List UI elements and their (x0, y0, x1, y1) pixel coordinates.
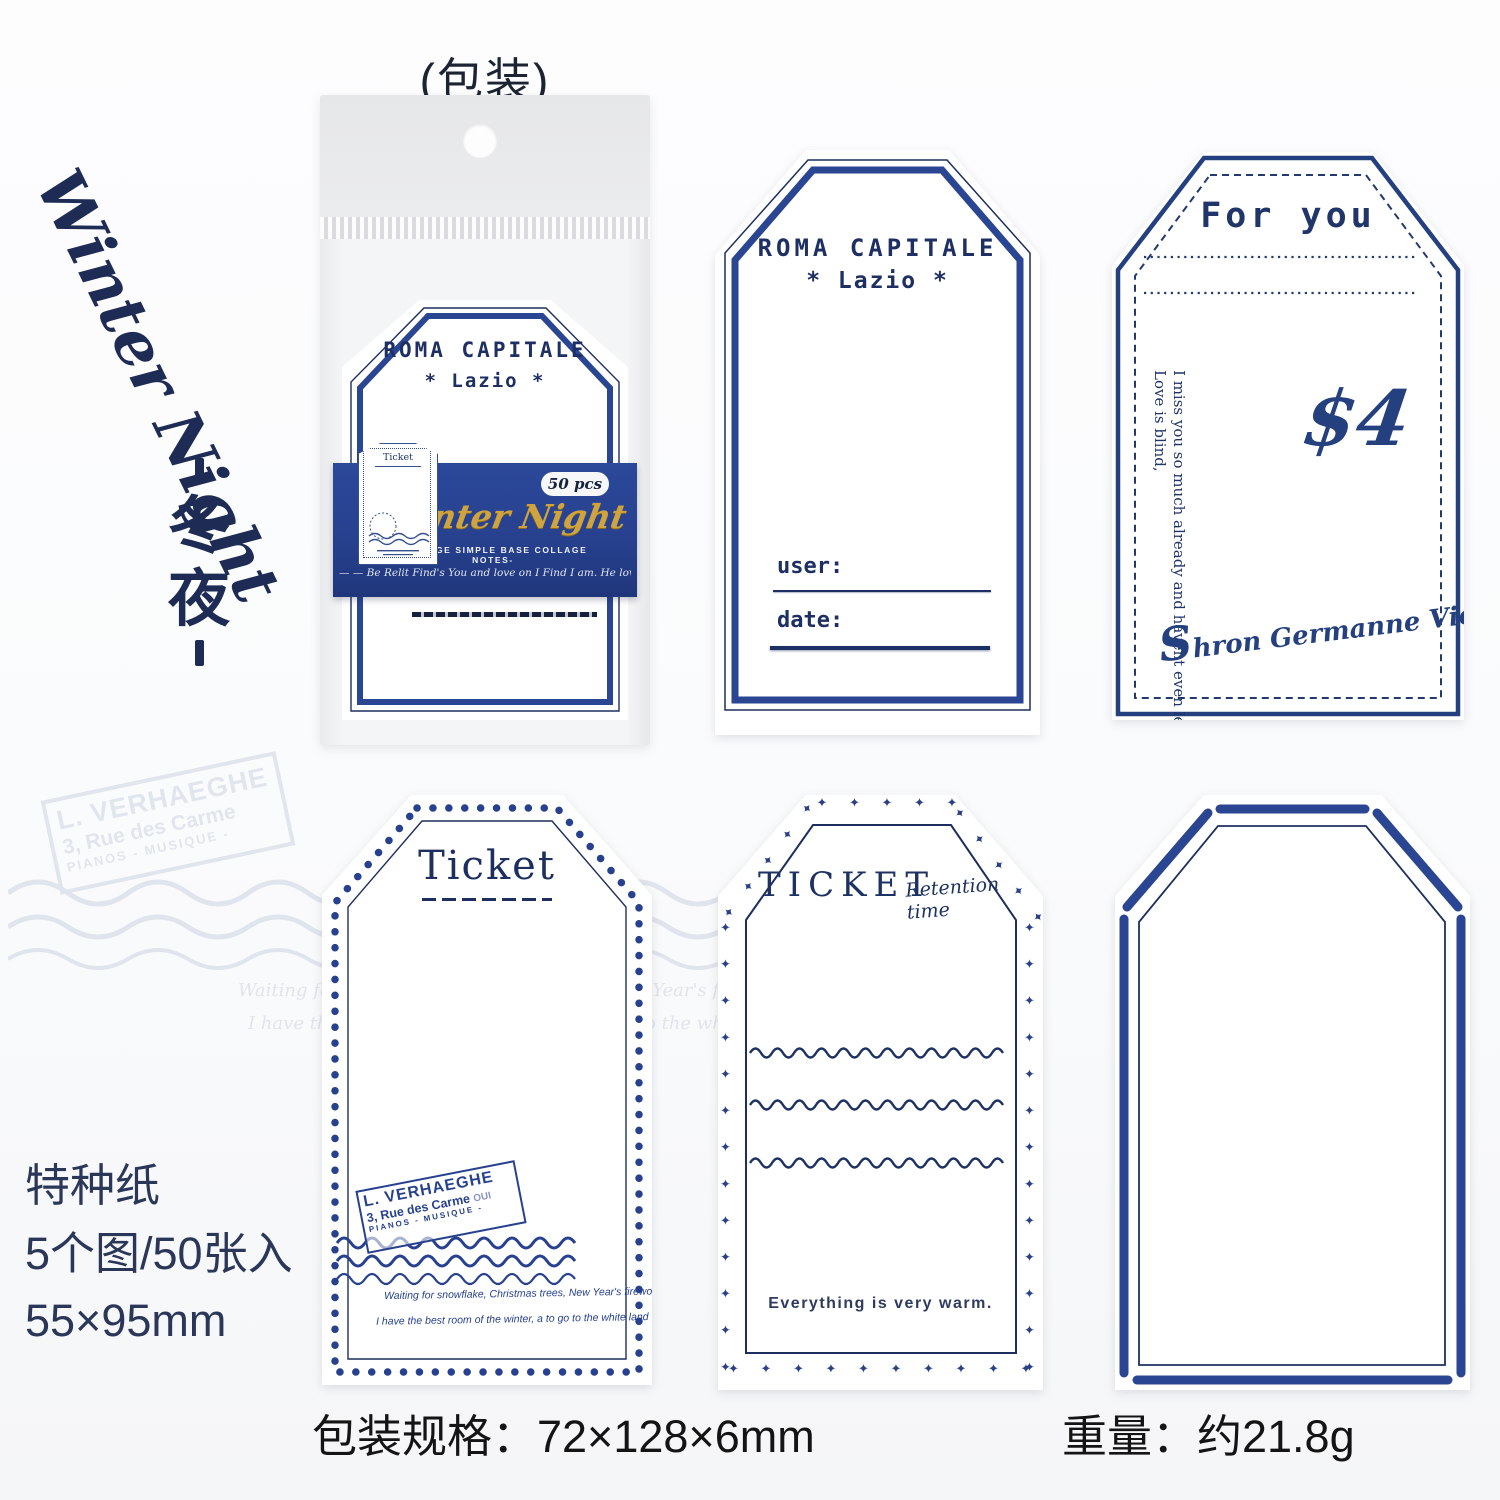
signature-initial: S (1156, 615, 1196, 673)
tag-for-you: For you Love is blind, I miss you so muc… (1112, 152, 1464, 720)
bag-perforation (320, 217, 650, 239)
tag-ticket-retention: ✦ ✦ ✦ ✦ ✦ ✦ ✦ ✦ ✦ ✦ ✦ ✦ ✦ ✦ ✦ ✦ ✦ ✦ ✦ ✦ … (718, 795, 1043, 1390)
mini-ticket-stamp-art (359, 444, 437, 564)
price-mark: $4 (1296, 374, 1419, 463)
tag-subtitle: * Lazio * (715, 268, 1040, 294)
spec-size: 55×95mm (25, 1287, 445, 1355)
tag-plain-border (1115, 795, 1470, 1390)
tag-title: For you (1112, 196, 1464, 236)
vertical-message-line2: I miss you so much already and havent ev… (1170, 370, 1188, 771)
tag-title: Ticket (322, 843, 652, 889)
tag-paper: For you Love is blind, I miss you so muc… (1112, 152, 1464, 720)
spec-count: 5个图/50张入 (25, 1220, 445, 1288)
title-dashed-rule (422, 898, 552, 901)
mini-ticket-card: Ticket (358, 443, 438, 565)
star-border-bottom: ✦ ✦ ✦ ✦ ✦ ✦ ✦ ✦ ✦ ✦ ✦ ✦ ✦ ✦ (728, 1361, 1033, 1377)
tag-paper (1115, 795, 1470, 1390)
date-write-line (770, 646, 990, 650)
pcs-badge: 50 pcs (541, 472, 609, 496)
vertical-message-line1: Love is blind, (1151, 370, 1169, 472)
user-label: user: (777, 554, 843, 579)
star-border-right: ✦ ✦ ✦ ✦ ✦ ✦ ✦ ✦ ✦ ✦ ✦ ✦ ✦ ✦ ✦ ✦ ✦ ✦ ✦ (1023, 921, 1038, 1361)
fine-print-line (412, 612, 597, 617)
tag-subtitle: * Lazio * (342, 370, 628, 392)
bag-hang-hole (463, 124, 497, 158)
tag-border-art (1115, 795, 1470, 1390)
weight-text: 重量：约21.8g (1062, 1400, 1355, 1465)
spec-paper: 特种纸 (25, 1152, 445, 1220)
date-label: date: (777, 608, 843, 633)
package-spec-text: 包装规格：72×128×6mm (312, 1400, 815, 1465)
zh-char-winter: 冬 (168, 494, 230, 557)
bottom-caption: Everything is very warm. (748, 1295, 1013, 1313)
tag-paper: ✦ ✦ ✦ ✦ ✦ ✦ ✦ ✦ ✦ ✦ ✦ ✦ ✦ ✦ ✦ ✦ ✦ ✦ ✦ ✦ … (718, 795, 1043, 1390)
tag-title: ROMA CAPITALE (715, 234, 1040, 262)
side-title-english: Winter Night (21, 158, 295, 615)
product-package: ROMA CAPITALE * Lazio * 50 pcs Winter Ni… (320, 95, 650, 745)
spec-block: 特种纸 5个图/50张入 55×95mm (25, 1152, 445, 1355)
zh-char-night: 夜 (168, 567, 230, 630)
user-write-line (773, 590, 991, 592)
star-border-left: ✦ ✦ ✦ ✦ ✦ ✦ ✦ ✦ ✦ ✦ ✦ ✦ ✦ ✦ ✦ ✦ ✦ ✦ ✦ (719, 921, 734, 1361)
band-script-line: — — Be Relit Find's You and love on I Fi… (339, 567, 631, 579)
decorative-dash (195, 640, 204, 666)
tag-title: ROMA CAPITALE (342, 338, 628, 362)
product-listing-image: Winter Night 冬 夜 L. VERHAEGHE 3, Rue des… (0, 0, 1500, 1500)
decorative-dash (195, 458, 204, 484)
side-title-chinese: 冬 夜 (166, 458, 232, 666)
tag-roma-capitale: ROMA CAPITALE * Lazio * user: date: (715, 150, 1040, 735)
tag-paper: ROMA CAPITALE * Lazio * user: date: (715, 150, 1040, 735)
